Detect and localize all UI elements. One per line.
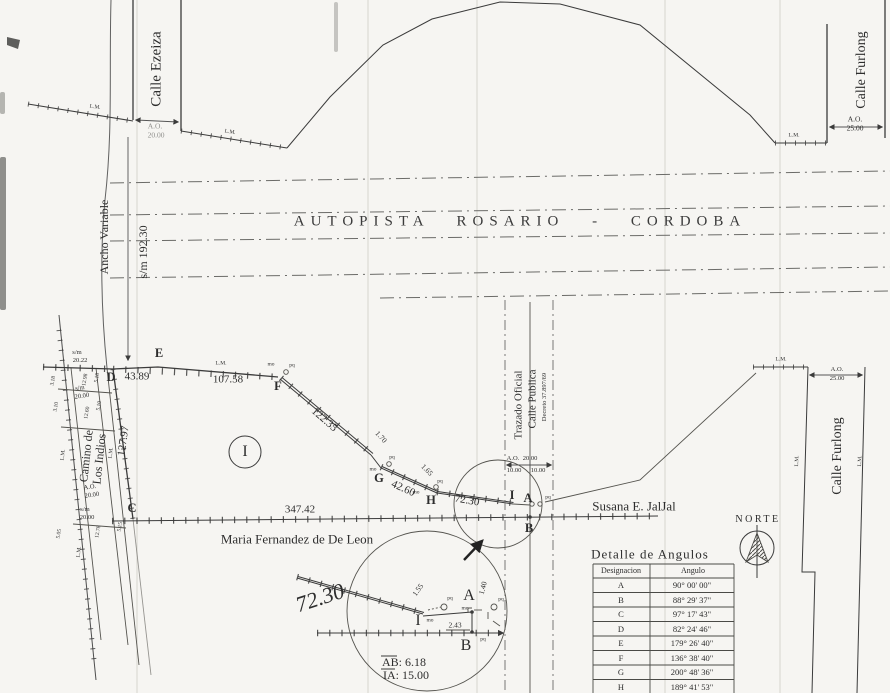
detail-point-i: I	[415, 613, 420, 629]
pq-marker: pq	[480, 637, 486, 643]
angle-row-value: 136° 38' 40"	[671, 654, 713, 663]
detail-off3-value: 2.43	[448, 621, 461, 629]
angle-row-value: 82° 24' 46"	[673, 625, 711, 634]
lm-marker: L.M.	[77, 546, 84, 558]
lm-marker: L.M.	[858, 455, 864, 466]
pq-marker: pq	[545, 495, 551, 501]
sm-192-label: s/m 192.30	[137, 225, 149, 278]
trazado-ao-label: A.O.	[507, 456, 520, 463]
angle-row-designation: D	[618, 625, 624, 634]
furlong-top-ao-label: A.O.	[848, 115, 863, 123]
ancho-variable-lines	[102, 0, 128, 368]
calle-furlong-right-label: Calle Furlong	[831, 417, 845, 494]
furlong-right-ao-label: A.O.	[831, 367, 844, 374]
angle-row-value: 189° 41' 53"	[671, 683, 713, 692]
angle-row-value: 97° 17' 43"	[673, 610, 711, 619]
mo-marker: mo	[267, 362, 274, 368]
camino-sm-bot-value: 20.00	[80, 515, 95, 522]
scan-smudges	[0, 2, 338, 310]
point-f-label: F	[274, 380, 282, 393]
point-h-label: H	[426, 494, 436, 507]
pq-marker: pq	[437, 479, 443, 485]
point-d-label: D	[106, 371, 115, 384]
mo-marker: mo	[426, 618, 433, 624]
detail-point-a: A	[463, 588, 475, 604]
ezeiza-ao-label: A.O.	[148, 122, 163, 130]
point-i-label: I	[510, 489, 515, 502]
side-ef-value: 107.58	[213, 375, 243, 386]
north-label: NORTE	[735, 515, 780, 525]
detail-point-b: B	[461, 638, 472, 654]
ezeiza-width-value: 20.00	[148, 131, 165, 139]
calle-furlong-right-lines	[753, 367, 865, 693]
trazado-width-value: 20.00	[523, 456, 538, 463]
trazado-half1-value: 10.00	[507, 468, 522, 475]
plan-drawing	[0, 0, 890, 693]
pq-marker: pq	[498, 597, 504, 603]
angle-table-title: Detalle de Angulos	[591, 548, 709, 561]
furlong-right-width-value: 25.00	[830, 376, 845, 383]
angle-row-designation: B	[618, 596, 624, 605]
angle-row-designation: E	[618, 639, 623, 648]
camino-sm-bot: s/m	[80, 507, 89, 514]
calle-publica-label: Calle Publica	[528, 370, 539, 429]
mo-marker: mo	[412, 490, 419, 496]
owner-south-label: Maria Fernandez de De Leon	[221, 533, 373, 546]
point-b-label: B	[525, 522, 533, 535]
point-c-label: C	[127, 502, 136, 515]
angle-row-designation: G	[618, 668, 624, 677]
owner-east-label: Susana E. JalJal	[592, 500, 675, 513]
mo-marker: mo	[461, 606, 468, 612]
side-cb-value: 347.42	[285, 505, 315, 516]
lm-marker: L.M.	[61, 449, 68, 461]
angle-row-designation: C	[618, 610, 624, 619]
side-de-value: 43.89	[125, 372, 150, 383]
angle-row-value: 88° 29' 37"	[673, 596, 711, 605]
lm-marker: L.M.	[789, 133, 800, 139]
pq-marker: pq	[447, 596, 453, 602]
detail-ab-value: AB: 6.18	[382, 656, 426, 668]
angle-row-designation: A	[618, 581, 624, 590]
highway-lane-lines	[110, 171, 890, 298]
angle-row-value: 179° 26' 40"	[671, 639, 713, 648]
lm-marker: L.M.	[776, 357, 787, 363]
survey-plan-page: Calle Ezeiza A.O. 20.00 Calle Furlong A.…	[0, 0, 890, 693]
detail-ia-value: IA: 15.00	[383, 669, 429, 681]
pq-marker: pq	[289, 363, 295, 369]
boundary-susana	[545, 373, 756, 502]
trazado-oficial-label: Trazado Oficial	[514, 371, 525, 440]
boundary-cb	[112, 516, 658, 521]
camino-sm-top-value: 20.22	[73, 358, 88, 365]
pq-marker: pq	[389, 455, 395, 461]
angle-table-col1: Designacion	[601, 567, 641, 575]
trazado-half2-value: 10.00	[531, 468, 546, 475]
autopista-title: AUTOPISTA ROSARIO - CORDOBA	[294, 215, 746, 230]
lm-marker: L.M.	[795, 455, 801, 466]
point-e-label: E	[155, 347, 163, 360]
lm-marker: L.M.	[216, 361, 227, 367]
angle-row-designation: H	[618, 683, 624, 692]
angle-row-value: 90° 00' 00"	[673, 581, 711, 590]
point-a-label: A	[523, 492, 532, 505]
calle-furlong-top-label: Calle Furlong	[855, 31, 869, 108]
boundary-fghi	[280, 370, 530, 519]
lm-marker: L.M.	[109, 447, 116, 459]
calle-ezeiza-label: Calle Ezeiza	[150, 31, 165, 106]
ancho-variable-label: Ancho Variable	[98, 200, 110, 275]
camino-sm-top: s/m	[72, 350, 81, 357]
furlong-top-width-value: 25.00	[847, 124, 864, 132]
parcel-designation: I	[242, 444, 247, 460]
point-g-label: G	[374, 472, 384, 485]
angle-table-col2: Angulo	[681, 567, 705, 575]
decreto-label: Decreto 37.897/69	[542, 373, 549, 421]
angle-row-value: 200° 48' 36"	[671, 668, 713, 677]
north-compass	[740, 525, 774, 578]
angle-row-designation: F	[619, 654, 624, 663]
